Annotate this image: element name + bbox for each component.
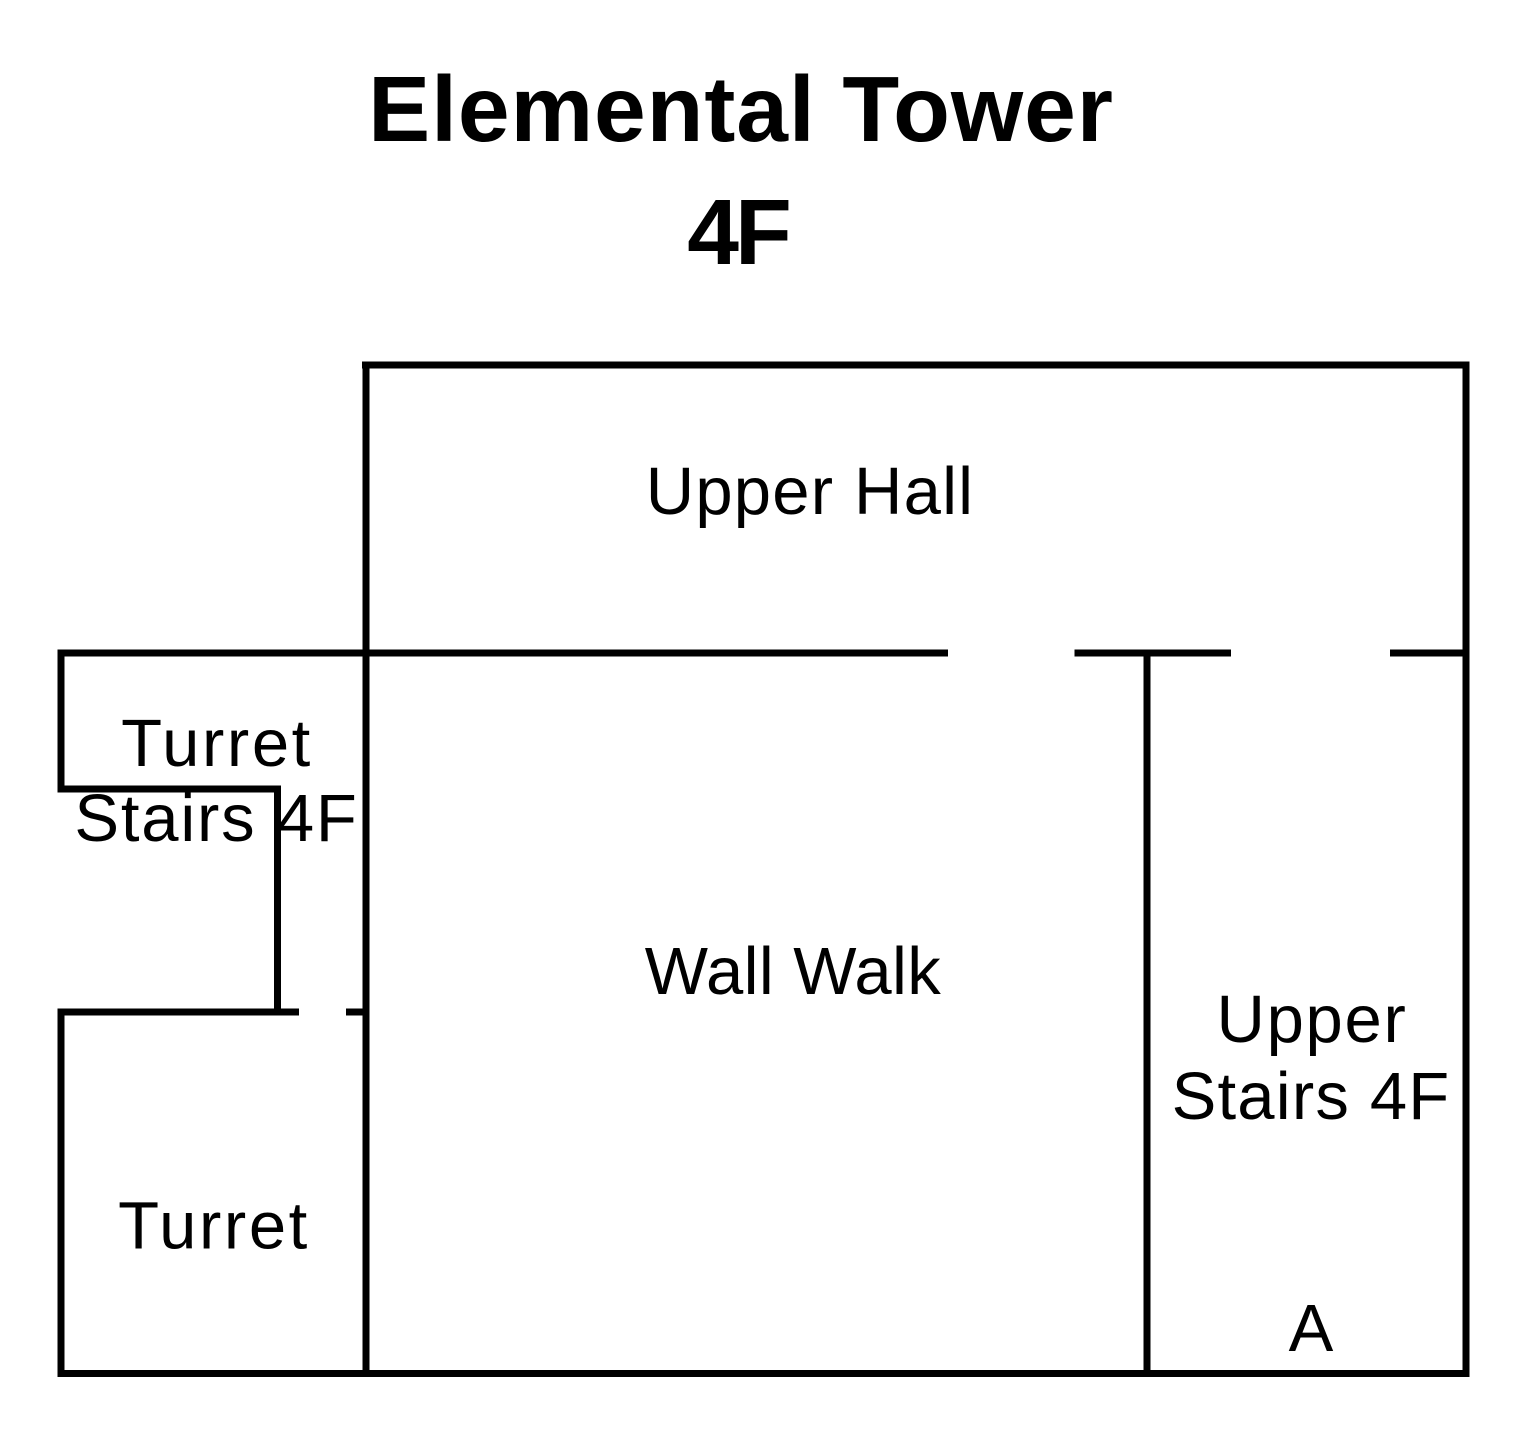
svg-text:Turret: Turret bbox=[121, 706, 313, 781]
svg-text:Elemental Tower: Elemental Tower bbox=[368, 57, 1114, 161]
svg-text:Stairs 4F: Stairs 4F bbox=[74, 781, 358, 856]
svg-text:Turret: Turret bbox=[118, 1189, 310, 1264]
svg-text:Upper: Upper bbox=[1217, 982, 1408, 1057]
svg-text:Wall Walk: Wall Walk bbox=[645, 934, 941, 1009]
svg-text:4F: 4F bbox=[687, 180, 789, 284]
svg-text:A: A bbox=[1289, 1291, 1334, 1366]
svg-text:Stairs 4F: Stairs 4F bbox=[1172, 1059, 1451, 1134]
svg-text:Upper Hall: Upper Hall bbox=[646, 454, 975, 529]
